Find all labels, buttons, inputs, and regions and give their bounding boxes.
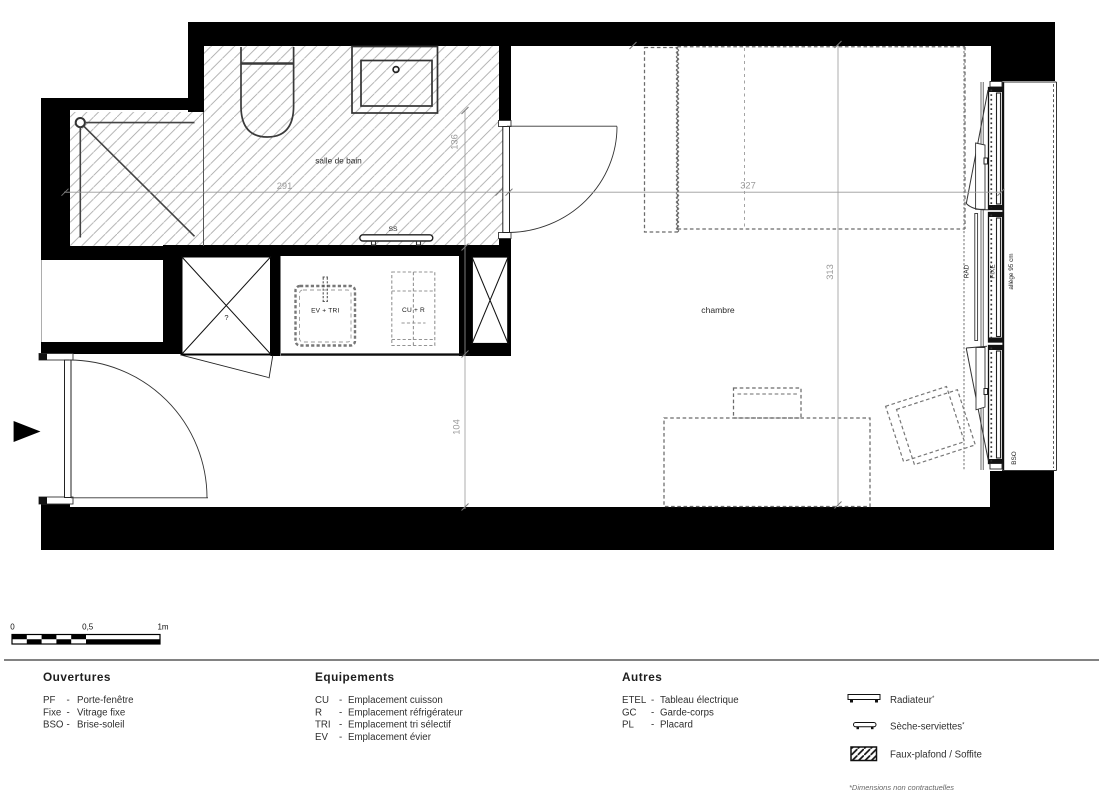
svg-text:-: -	[67, 707, 70, 718]
svg-text:Radiateur*: Radiateur*	[890, 695, 935, 706]
svg-text:salle de bain: salle de bain	[315, 156, 362, 166]
svg-text:0,5: 0,5	[82, 623, 94, 632]
svg-text:FIXE: FIXE	[990, 264, 997, 278]
svg-text:TRI: TRI	[315, 720, 331, 731]
svg-text:291: 291	[277, 181, 293, 191]
svg-text:ETEL: ETEL	[622, 695, 647, 706]
svg-text:104: 104	[452, 419, 462, 435]
svg-text:CU + R: CU + R	[402, 307, 425, 314]
svg-text:R: R	[315, 707, 322, 718]
svg-text:Ouvertures: Ouvertures	[43, 670, 111, 684]
svg-text:Autres: Autres	[622, 670, 662, 684]
svg-text:Tableau électrique: Tableau électrique	[660, 695, 739, 706]
svg-text:Placard: Placard	[660, 720, 693, 731]
svg-text:Equipements: Equipements	[315, 670, 395, 684]
svg-text:RAD: RAD	[964, 264, 971, 278]
svg-text:CU: CU	[315, 695, 329, 706]
svg-text:Sèche-serviettes*: Sèche-serviettes*	[890, 722, 965, 733]
svg-text:Emplacement tri sélectif: Emplacement tri sélectif	[348, 720, 451, 731]
svg-text:-: -	[67, 695, 70, 706]
svg-text:Emplacement cuisson: Emplacement cuisson	[348, 695, 443, 706]
svg-text:GC: GC	[622, 707, 637, 718]
svg-text:0: 0	[10, 623, 15, 632]
svg-text:Emplacement réfrigérateur: Emplacement réfrigérateur	[348, 707, 463, 718]
svg-text:-: -	[651, 707, 654, 718]
svg-text:-: -	[339, 720, 342, 731]
svg-text:Faux-plafond / Soffite: Faux-plafond / Soffite	[890, 750, 982, 761]
svg-text:-: -	[339, 695, 342, 706]
svg-text:Emplacement évier: Emplacement évier	[348, 732, 432, 743]
svg-text:SS: SS	[388, 226, 398, 233]
svg-text:*Dimensions non contractuelles: *Dimensions non contractuelles	[849, 783, 954, 792]
svg-text:Porte-fenêtre: Porte-fenêtre	[77, 695, 134, 706]
svg-text:313: 313	[825, 264, 835, 280]
svg-text:?: ?	[224, 313, 228, 322]
svg-text:-: -	[651, 695, 654, 706]
svg-text:Brise-soleil: Brise-soleil	[77, 720, 124, 731]
svg-text:-: -	[339, 707, 342, 718]
svg-text:EV + TRI: EV + TRI	[311, 308, 339, 315]
svg-text:PF: PF	[43, 695, 55, 706]
svg-text:Garde-corps: Garde-corps	[660, 707, 714, 718]
svg-text:allège 95 cm: allège 95 cm	[1008, 253, 1015, 289]
svg-text:BSO: BSO	[43, 720, 64, 731]
svg-text:327: 327	[740, 181, 756, 191]
svg-text:136: 136	[450, 134, 460, 150]
svg-text:-: -	[651, 720, 654, 731]
svg-text:-: -	[67, 720, 70, 731]
svg-text:EV: EV	[315, 732, 328, 743]
svg-text:Fixe: Fixe	[43, 707, 61, 718]
svg-text:BSO: BSO	[1011, 451, 1018, 465]
svg-text:chambre: chambre	[701, 305, 735, 315]
svg-text:1m: 1m	[157, 623, 168, 632]
svg-text:PL: PL	[622, 720, 634, 731]
svg-text:-: -	[339, 732, 342, 743]
svg-text:Vitrage fixe: Vitrage fixe	[77, 707, 125, 718]
